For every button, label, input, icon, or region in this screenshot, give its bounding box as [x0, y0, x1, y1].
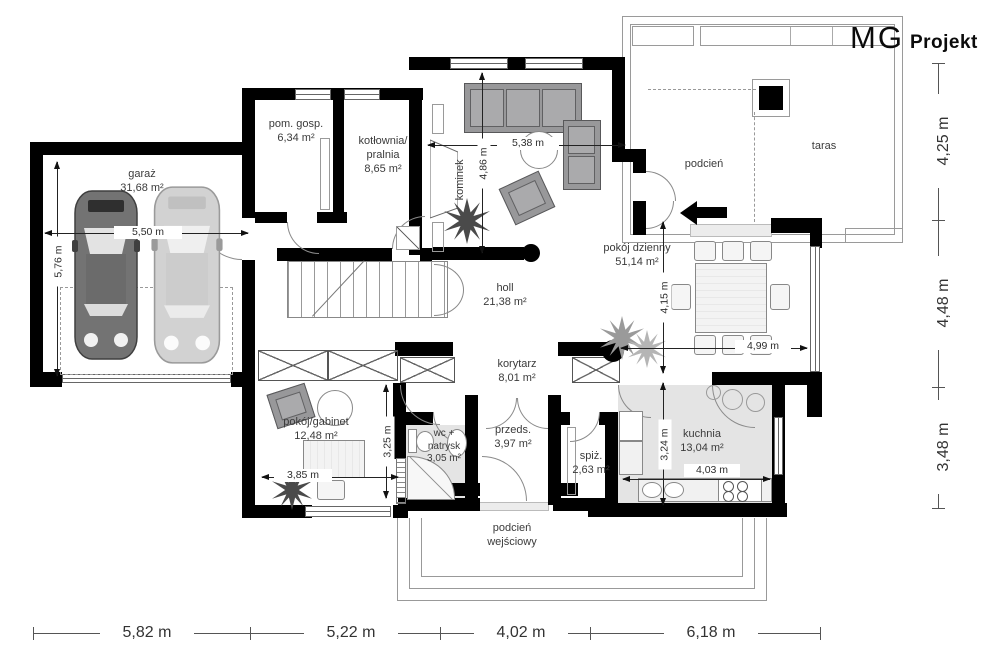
window [810, 246, 820, 372]
dim-label-dining-depth: 4,15 m [659, 273, 672, 323]
room-label-pom-gosp: pom. gosp. 6,34 m² [246, 118, 346, 146]
room-name: wc + [406, 428, 482, 441]
room-label-pokoj-dzienny: pokój dzienny 51,14 m² [577, 242, 697, 270]
dim-label-kitchen-depth: 3,24 m [659, 420, 672, 470]
room-name: natrysk [406, 441, 482, 454]
room-name: podcień [452, 522, 572, 536]
room-name: garaż [92, 168, 192, 182]
sink-basin [642, 482, 662, 498]
wall-segment [242, 88, 423, 100]
wall-segment [633, 149, 646, 173]
wall-segment [242, 88, 255, 518]
dim-tick [33, 627, 34, 640]
room-area: 6,34 m² [246, 132, 346, 146]
wall-segment [420, 248, 432, 261]
room-name: pralnia [333, 149, 433, 163]
dim-label-bottom-4: 6,18 m [664, 624, 758, 642]
fridge [619, 411, 643, 441]
terrace-top-panel-small [632, 26, 694, 46]
dining-chair [694, 335, 716, 355]
wall-segment [633, 201, 646, 235]
terrace-panel-divider [790, 27, 791, 45]
staircase [287, 261, 448, 318]
dim-tick [590, 627, 591, 640]
terrace-panel-divider [832, 27, 833, 45]
room-label-kotlownia: kotłownia/ pralnia 8,65 m² [333, 135, 433, 176]
armchair-cushion [508, 180, 546, 216]
room-name: wejściowy [452, 536, 572, 550]
dim-label-bottom-3: 4,02 m [474, 624, 568, 642]
dim-label-living-depth: 4,86 m [478, 139, 491, 189]
window [295, 89, 331, 100]
dim-tick [440, 627, 441, 640]
washing-machine [396, 226, 420, 250]
dim-label-gabinet-width: 3,85 m [274, 469, 332, 482]
fireplace-shelf [432, 104, 444, 134]
door-opening [242, 218, 255, 260]
room-name: pokój dzienny [577, 242, 697, 256]
room-area: 3,97 m² [473, 438, 553, 452]
garage-door [62, 374, 231, 383]
dim-label-bottom-1: 5,82 m [100, 624, 194, 642]
dim-tick [932, 387, 945, 388]
radiator [396, 458, 406, 504]
dim-label-dining-width: 4,99 m [735, 340, 791, 353]
room-area: 12,48 m² [256, 430, 376, 444]
column [522, 244, 540, 262]
window [450, 58, 508, 69]
dim-line-kitchen-width [623, 479, 770, 480]
dim-label-gabinet-depth: 3,25 m [382, 417, 395, 467]
room-area: 21,38 m² [455, 296, 555, 310]
stove-burner [737, 491, 748, 502]
sink-basin [664, 482, 684, 498]
room-area: 2,63 m² [551, 464, 631, 478]
wall-segment [255, 212, 287, 223]
wall-segment [30, 142, 43, 387]
entry-arrow-shaft [697, 207, 727, 218]
wall-segment [395, 342, 453, 356]
kitchen-decor [722, 389, 743, 410]
entry-arrow-head [680, 201, 697, 225]
room-label-przeds: przeds. 3,97 m² [473, 424, 553, 452]
roof-edge-dashed [754, 112, 755, 222]
room-area: 8,01 m² [467, 372, 567, 386]
room-area: 31,68 m² [92, 182, 192, 196]
room-label-garaz: garaż 31,68 m² [92, 168, 192, 196]
dim-tick [932, 63, 945, 64]
wall-segment [588, 503, 787, 517]
wall-segment [30, 142, 255, 155]
window [305, 506, 391, 517]
door-arc [482, 456, 527, 501]
room-name: spiż. [551, 450, 631, 464]
dim-label-garage-depth: 5,76 m [53, 237, 66, 287]
dining-table [695, 263, 767, 333]
plant [628, 330, 666, 368]
room-label-kominek: kominek [454, 152, 468, 208]
shelf [320, 138, 330, 210]
room-name: pom. gosp. [246, 118, 346, 132]
kitchen-decor [746, 393, 765, 412]
wall-segment [317, 212, 347, 223]
brand-logo-projekt: Projekt [910, 32, 978, 54]
room-label-gabinet: pokój/gabinet 12,48 m² [256, 416, 376, 444]
wall-segment [712, 372, 822, 385]
wardrobe [400, 357, 455, 383]
window [525, 58, 583, 69]
dim-label-right-2: 4,48 m [935, 256, 953, 350]
brand-logo-mg: MG [850, 20, 904, 56]
sofa-cushion [470, 89, 504, 127]
room-label-podcien: podcień [654, 158, 754, 172]
dining-chair [750, 241, 772, 261]
room-label-holl: holl 21,38 m² [455, 282, 555, 310]
dim-tick [250, 627, 251, 640]
window [774, 417, 783, 475]
dining-chair [770, 284, 790, 310]
sofa-cushion [506, 89, 540, 127]
wardrobe [258, 350, 328, 381]
room-label-wc: wc + natrysk 3,05 m² [406, 428, 482, 466]
room-label-korytarz: korytarz 8,01 m² [467, 358, 567, 386]
wall-segment [810, 218, 822, 248]
kitchen-decor [706, 385, 721, 400]
room-name: holl [455, 282, 555, 296]
room-label-spiz: spiż. 2,63 m² [551, 450, 631, 478]
window [344, 89, 380, 100]
dim-label-right-1: 4,25 m [935, 94, 953, 188]
dim-label-living-width: 5,38 m [497, 137, 559, 150]
wall-segment [277, 248, 392, 261]
room-name: przeds. [473, 424, 553, 438]
room-name: korytarz [467, 358, 567, 372]
dim-tick [932, 220, 945, 221]
room-area: 8,65 m² [333, 163, 433, 177]
desk-chair [317, 480, 345, 500]
fireplace-shelf [432, 222, 444, 252]
wardrobe [328, 350, 398, 381]
dining-chair [722, 241, 744, 261]
terrace-pillar [759, 86, 783, 110]
room-area: 51,14 m² [577, 256, 697, 270]
dim-tick [820, 627, 821, 640]
sofa-cushion [568, 126, 595, 154]
wall-segment [409, 57, 625, 70]
roof-edge-dashed [648, 89, 756, 90]
sofa-cushion [568, 156, 595, 184]
dim-label-garage-width: 5,50 m [114, 226, 182, 239]
room-area: 3,05 m² [406, 453, 482, 466]
room-name: pokój/gabinet [256, 416, 376, 430]
entrance-threshold [479, 502, 549, 511]
floor-plan: garaż 31,68 m² pom. gosp. 6,34 m² kotłow… [0, 0, 995, 657]
dim-label-bottom-2: 5,22 m [304, 624, 398, 642]
terrace-step [845, 228, 903, 243]
brand-logo: MG Projekt [850, 20, 978, 56]
car-dark [72, 188, 140, 362]
room-name: kotłownia/ [333, 135, 433, 149]
room-label-podcien-wejsciowy: podcień wejściowy [452, 522, 572, 550]
stove-burner [723, 491, 734, 502]
car-light [148, 184, 226, 366]
dim-label-right-3: 3,48 m [935, 400, 953, 494]
room-label-taras: taras [774, 140, 874, 154]
dim-label-kitchen-width: 4,03 m [684, 464, 740, 477]
dim-tick [932, 508, 945, 509]
dining-chair [671, 284, 691, 310]
wall-segment [561, 412, 570, 425]
podcien-threshold [690, 224, 772, 237]
dining-chair [694, 241, 716, 261]
armchair [499, 171, 556, 226]
